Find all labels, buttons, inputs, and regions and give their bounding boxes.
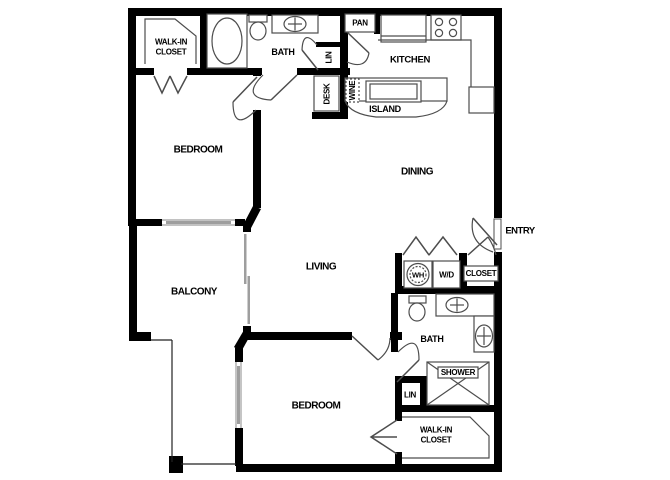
windows	[162, 219, 251, 428]
wall-balcony-foot	[129, 332, 151, 341]
label-desk: DESK	[323, 83, 332, 105]
label-bath-1: BATH	[271, 47, 294, 57]
bedroom2-door-arc	[378, 338, 390, 360]
slider-panel	[244, 234, 247, 284]
window-glass	[166, 221, 231, 224]
label-linen-2: LIN	[404, 391, 417, 400]
bath2-door-arc	[398, 343, 419, 360]
wall-bath2-west	[391, 293, 398, 352]
label-dining: DINING	[401, 167, 434, 178]
label-island: ISLAND	[369, 104, 402, 114]
wall-right-upper	[494, 8, 502, 218]
label-wine: WINE	[348, 80, 357, 101]
fixtures	[145, 14, 498, 458]
label-water-heater: WH	[412, 271, 424, 280]
label-walkin-closet-1: CLOSET	[156, 48, 187, 57]
lin1-door	[302, 50, 318, 70]
floor-plan: WALK-IN CLOSET BATH PAN KITCHEN LIN DESK…	[0, 0, 670, 480]
toilet-icon	[250, 22, 266, 40]
wall-lin2-west	[395, 381, 402, 407]
wall-closet1-divider	[200, 14, 207, 68]
wall-walkin2-west-a	[395, 405, 402, 421]
label-walkin-closet-1: WALK-IN	[155, 38, 188, 47]
label-linen-1: LIN	[325, 51, 334, 64]
label-shower: SHOWER	[441, 368, 476, 377]
bath1-door	[271, 75, 297, 100]
label-coat-closet: CLOSET	[466, 269, 497, 278]
utility-bifold-doors	[403, 237, 457, 255]
label-kitchen: KITCHEN	[390, 55, 431, 66]
wall-seg	[128, 68, 154, 75]
wall-bedroom1-post	[253, 68, 261, 76]
lin1-door-arc	[302, 38, 317, 50]
label-pantry: PAN	[352, 19, 368, 28]
entry-door-arc	[472, 218, 493, 252]
label-bath-2: BATH	[420, 334, 443, 344]
balcony-railing	[151, 340, 236, 464]
label-walkin-closet-2: CLOSET	[421, 436, 452, 445]
wall-left	[128, 8, 136, 226]
wall-desk-bottom	[312, 112, 348, 119]
wall-bedroom-balcony-a	[128, 219, 162, 226]
wall-slider-post-top	[243, 224, 251, 232]
label-balcony: BALCONY	[171, 287, 218, 298]
wall-bedroom2-west-b	[235, 428, 243, 466]
slider-panel	[248, 276, 251, 324]
wall-balcony-left	[129, 219, 137, 338]
label-bedroom-2: BEDROOM	[292, 401, 341, 412]
pantry-door	[347, 32, 369, 53]
label-living: LIVING	[306, 262, 337, 273]
bedroom2-door	[352, 336, 378, 360]
island-sink-inner	[370, 84, 417, 99]
fridge-icon	[381, 15, 426, 42]
wall-seg	[187, 68, 262, 75]
wall-post-bottom-left	[169, 456, 183, 473]
closet1-doors	[154, 76, 187, 93]
label-bedroom-1: BEDROOM	[174, 145, 223, 156]
floor-plan-page: WALK-IN CLOSET BATH PAN KITCHEN LIN DESK…	[0, 0, 670, 480]
stove-icon	[431, 15, 461, 40]
wall-bedroom2-west-a	[235, 348, 243, 362]
wall-seg	[297, 68, 313, 75]
wall-living-bedroom2	[243, 332, 352, 340]
wall-bottom	[236, 464, 502, 472]
kitchen-counter-end	[469, 87, 494, 113]
wall-right-lower	[494, 252, 502, 472]
toilet-tank	[409, 296, 426, 303]
label-entry: ENTRY	[505, 226, 536, 237]
toilet-tank	[249, 15, 267, 22]
label-washer-dryer: W/D	[439, 271, 454, 280]
closet2-doors	[371, 420, 397, 454]
pantry-door-arc	[347, 53, 369, 65]
bedroom1-door-arc	[233, 102, 256, 120]
label-walkin-closet-2: WALK-IN	[420, 426, 453, 435]
window-glass	[237, 366, 240, 424]
wall-lin1-top	[316, 42, 342, 47]
coat-closet-door	[468, 237, 488, 255]
bathtub-icon	[212, 18, 242, 64]
wall-walkin2-top	[395, 405, 502, 412]
wall-bedroom1-right	[253, 110, 261, 208]
toilet-icon	[409, 303, 425, 321]
